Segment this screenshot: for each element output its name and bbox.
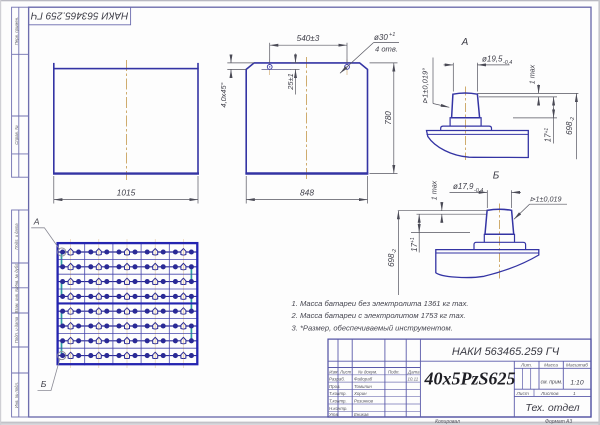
svg-text:ø17,9: ø17,9 xyxy=(453,182,474,191)
svg-text:НАКИ 563465.259 ГЧ: НАКИ 563465.259 ГЧ xyxy=(452,346,560,358)
svg-text:848: 848 xyxy=(300,188,314,198)
svg-text:Лит.: Лит. xyxy=(520,362,532,367)
svg-text:Лист: Лист xyxy=(516,391,529,397)
svg-text:Масса: Масса xyxy=(544,362,558,367)
svg-text:Розинков: Розинков xyxy=(354,399,374,404)
svg-text:1. Масса батареи без электроли: 1. Масса батареи без электролита 1361 кг… xyxy=(292,299,469,308)
svg-text:Пров.: Пров. xyxy=(329,384,341,389)
svg-text:-0,4: -0,4 xyxy=(474,188,483,194)
svg-text:⊳1±0,019°: ⊳1±0,019° xyxy=(420,68,429,104)
svg-text:Листов: Листов xyxy=(540,391,559,397)
svg-text:Еникав: Еникав xyxy=(354,412,369,417)
svg-text:⊳1±0,019: ⊳1±0,019 xyxy=(530,195,562,204)
svg-text:Подп. и дата: Подп. и дата xyxy=(14,223,19,250)
svg-text:4 отв.: 4 отв. xyxy=(375,44,398,53)
svg-text:Формат: Формат xyxy=(545,419,565,425)
svg-text:А: А xyxy=(33,217,40,227)
svg-text:Копировал: Копировал xyxy=(435,419,460,425)
svg-text:Подп. и дата: Подп. и дата xyxy=(14,316,19,343)
svg-text:А: А xyxy=(461,37,469,48)
svg-text:25±1: 25±1 xyxy=(286,73,295,90)
svg-text:40x5PzS625: 40x5PzS625 xyxy=(423,368,515,388)
svg-text:Подп.: Подп. xyxy=(388,369,400,374)
svg-text:Т.контр.: Т.контр. xyxy=(329,391,347,396)
svg-text:Взам. инв. №: Взам. инв. № xyxy=(14,287,19,313)
svg-text:-0,4: -0,4 xyxy=(503,60,512,66)
svg-text:см. прим.: см. прим. xyxy=(541,379,563,385)
svg-text:Томилин: Томилин xyxy=(354,384,372,389)
svg-text:4,0х45°: 4,0х45° xyxy=(219,82,228,107)
svg-text:Лист: Лист xyxy=(339,369,352,374)
svg-text:Справ. №: Справ. № xyxy=(14,125,19,145)
svg-text:Утв.: Утв. xyxy=(329,412,339,417)
svg-text:Т.контр.: Т.контр. xyxy=(329,399,347,404)
svg-text:Тех. отдел: Тех. отдел xyxy=(525,402,579,414)
svg-text:Фадораб: Фадораб xyxy=(354,377,373,382)
svg-text:Инв. № дубл.: Инв. № дубл. xyxy=(14,263,19,289)
svg-text:Хорин: Хорин xyxy=(353,391,367,396)
svg-text:Дата: Дата xyxy=(407,369,420,374)
svg-text:1 max: 1 max xyxy=(527,64,536,84)
svg-text:Н.контр.: Н.контр. xyxy=(329,406,348,411)
svg-text:2. Масса батареи с электролито: 2. Масса батареи с электролитом 1753 кг … xyxy=(291,311,466,320)
svg-text:А3: А3 xyxy=(565,419,572,425)
svg-text:1: 1 xyxy=(573,391,576,397)
svg-text:№ докум.: № докум. xyxy=(358,369,377,374)
svg-text:НАКИ 563465.259 ГЧ: НАКИ 563465.259 ГЧ xyxy=(31,10,129,21)
svg-text:ø30: ø30 xyxy=(374,33,388,42)
svg-text:ø19,5: ø19,5 xyxy=(482,54,503,63)
svg-text:780: 780 xyxy=(384,111,393,125)
svg-text:Изм: Изм xyxy=(329,369,337,374)
svg-text:Масштаб: Масштаб xyxy=(566,362,588,367)
svg-text:3. *Размер, обеспечиваемый инс: 3. *Размер, обеспечиваемый инструментом. xyxy=(292,323,453,332)
svg-text:540±3: 540±3 xyxy=(297,34,320,43)
svg-text:Инв. № подл.: Инв. № подл. xyxy=(14,382,19,408)
svg-text:+1: +1 xyxy=(389,32,395,38)
svg-text:1:10: 1:10 xyxy=(570,379,583,386)
svg-text:Перв. примен.: Перв. примен. xyxy=(14,17,19,46)
svg-text:Б: Б xyxy=(41,379,47,389)
svg-text:1 max: 1 max xyxy=(430,180,439,200)
svg-text:10.11: 10.11 xyxy=(408,377,419,382)
svg-text:1015: 1015 xyxy=(117,188,136,198)
svg-text:Б: Б xyxy=(493,171,500,182)
svg-text:Разраб.: Разраб. xyxy=(329,377,345,382)
